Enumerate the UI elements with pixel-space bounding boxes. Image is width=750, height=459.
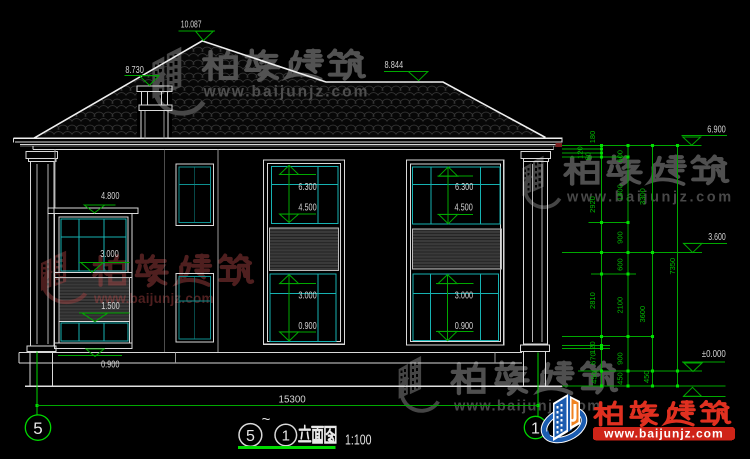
- svg-text:180: 180: [588, 131, 597, 144]
- svg-text:0.900: 0.900: [455, 320, 473, 332]
- svg-text:6.900: 6.900: [707, 123, 726, 135]
- svg-text:6.300: 6.300: [298, 181, 316, 193]
- svg-text:450: 450: [616, 372, 625, 385]
- svg-text:900: 900: [615, 231, 624, 244]
- svg-text:600: 600: [615, 150, 624, 163]
- svg-text:3.600: 3.600: [708, 231, 726, 243]
- svg-text:3300: 3300: [638, 188, 647, 205]
- svg-text:4.500: 4.500: [455, 201, 473, 213]
- svg-text:1.500: 1.500: [101, 300, 120, 312]
- svg-text:www.baijunjz.com: www.baijunjz.com: [603, 426, 724, 440]
- svg-text:120: 120: [588, 341, 597, 354]
- svg-text:450: 450: [590, 371, 599, 384]
- svg-text:~: ~: [262, 411, 271, 428]
- svg-text:4.500: 4.500: [298, 201, 316, 213]
- svg-text:0.900: 0.900: [101, 358, 120, 370]
- svg-text:3.000: 3.000: [455, 290, 473, 302]
- svg-text:±0.000: ±0.000: [702, 348, 726, 360]
- svg-text:3.000: 3.000: [298, 290, 316, 302]
- svg-text:5: 5: [33, 419, 42, 438]
- svg-text:3.000: 3.000: [100, 248, 119, 260]
- svg-text:600: 600: [615, 258, 624, 271]
- svg-text:7350: 7350: [668, 258, 677, 275]
- svg-text:6.300: 6.300: [455, 181, 473, 193]
- svg-text:900: 900: [615, 352, 624, 365]
- svg-text:10.087: 10.087: [181, 18, 202, 30]
- svg-text:4.800: 4.800: [101, 190, 120, 202]
- svg-text:3600: 3600: [638, 306, 647, 323]
- svg-text:1: 1: [282, 428, 290, 445]
- svg-text:5: 5: [246, 428, 255, 445]
- svg-text:15300: 15300: [279, 395, 307, 406]
- svg-text:2920: 2920: [588, 196, 597, 213]
- svg-text:1800: 1800: [615, 184, 624, 201]
- svg-text:450: 450: [642, 371, 651, 384]
- svg-text:2810: 2810: [588, 292, 597, 309]
- svg-text:0.900: 0.900: [298, 320, 316, 332]
- svg-text:8.844: 8.844: [385, 59, 404, 71]
- svg-text:1:100: 1:100: [345, 433, 372, 449]
- svg-text:1: 1: [531, 421, 540, 438]
- svg-text:80: 80: [583, 152, 592, 160]
- svg-text:8.730: 8.730: [125, 64, 144, 76]
- svg-text:www.baijunjz.com: www.baijunjz.com: [203, 83, 370, 100]
- svg-text:2100: 2100: [615, 297, 624, 314]
- svg-text:670: 670: [588, 352, 597, 365]
